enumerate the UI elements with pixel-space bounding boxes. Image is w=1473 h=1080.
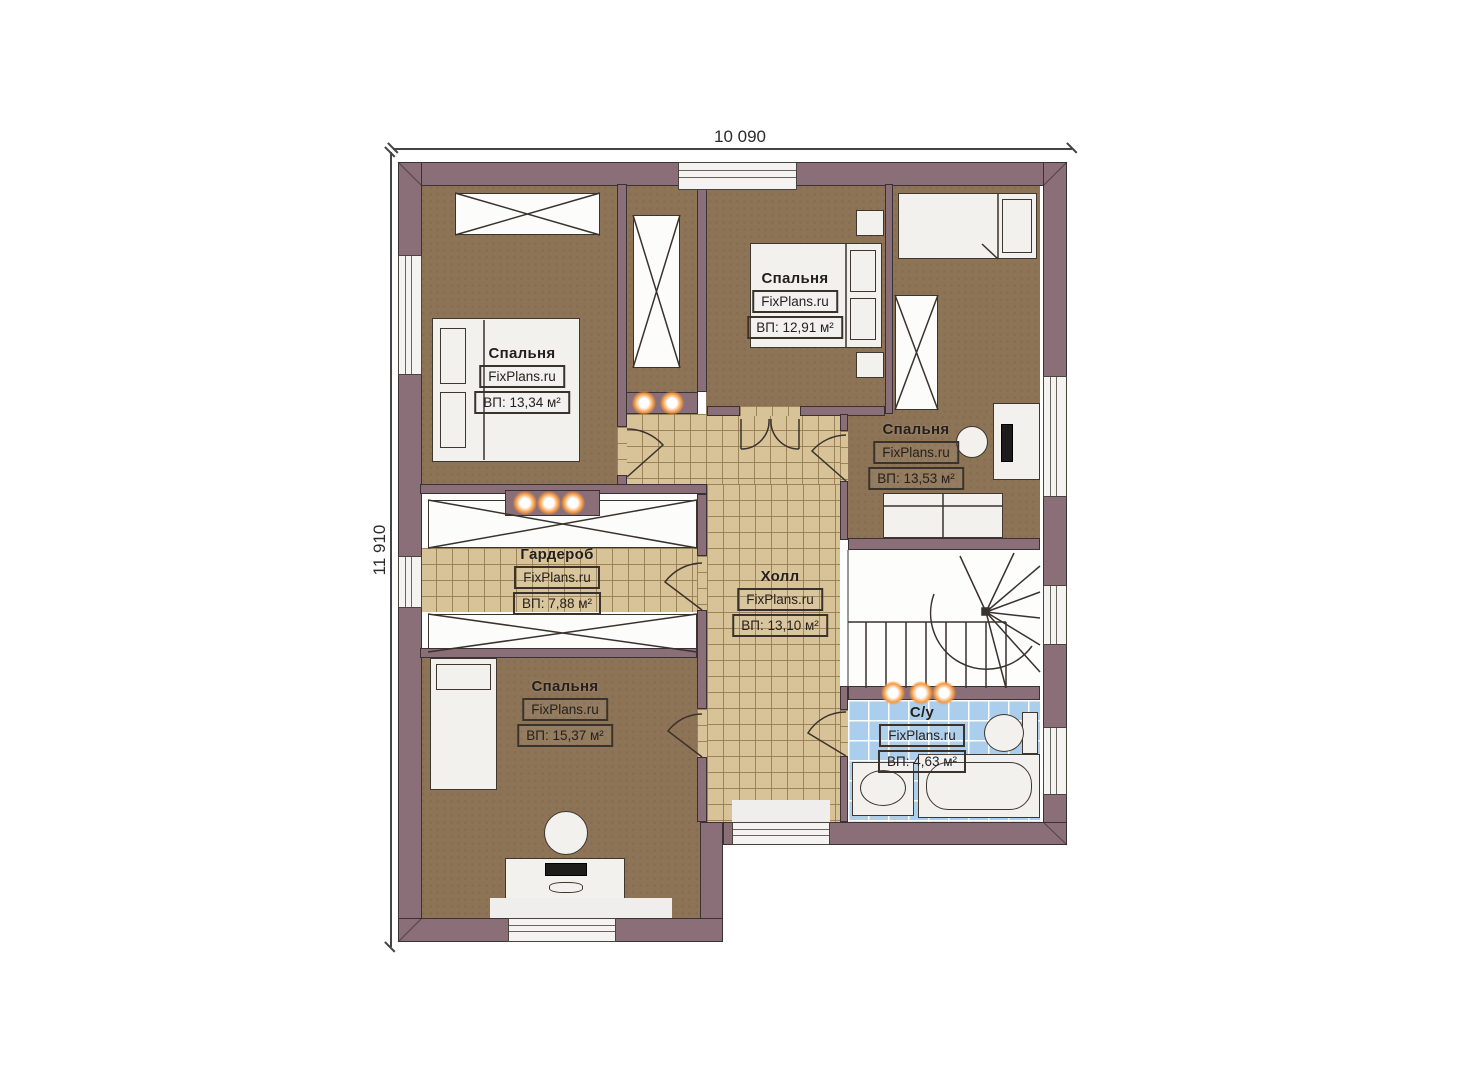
room-name: С/у — [910, 704, 934, 721]
wall-interior — [840, 756, 848, 822]
room-label-hall: Холл FixPlans.ru ВП: 13,10 м² — [732, 568, 828, 637]
room-label-bedroom-top-left: Спальня FixPlans.ru ВП: 13,34 м² — [474, 345, 570, 414]
ceiling-light — [932, 681, 956, 705]
dimension-top-label: 10 090 — [695, 127, 785, 147]
pillow — [440, 328, 466, 384]
pillow — [440, 392, 466, 448]
computer-monitor — [1001, 424, 1013, 462]
toilet-bowl — [984, 714, 1024, 752]
dimension-left-label: 11 910 — [370, 515, 390, 585]
wardrobe-unit — [428, 614, 697, 652]
sink-basin — [860, 770, 906, 806]
room-label-bedroom-bottom-left: Спальня FixPlans.ru ВП: 15,37 м² — [517, 678, 613, 747]
dimension-line-left — [390, 152, 392, 947]
ceiling-light — [561, 491, 585, 515]
door-opening — [740, 406, 800, 416]
toilet-tank — [1022, 712, 1038, 754]
wall-interior — [697, 494, 707, 556]
wall-interior — [840, 414, 848, 431]
chair — [544, 811, 588, 855]
nightstand — [856, 210, 884, 236]
window-bay — [732, 800, 830, 822]
wall-interior — [840, 686, 848, 710]
room-area: ВП: 13,53 м² — [868, 467, 964, 490]
window — [1043, 376, 1067, 497]
hall-floor-upper — [626, 414, 840, 484]
window — [398, 255, 422, 375]
hall-floor-lower — [707, 484, 840, 822]
sofa — [883, 493, 1003, 538]
watermark: FixPlans.ru — [879, 724, 965, 747]
window — [678, 162, 797, 190]
window — [398, 556, 422, 608]
room-name: Спальня — [532, 678, 599, 695]
room-name: Спальня — [489, 345, 556, 362]
room-area: ВП: 13,34 м² — [474, 391, 570, 414]
window-bay — [490, 898, 672, 918]
window — [1043, 727, 1067, 795]
window — [732, 822, 830, 845]
floor-plan: Спальня FixPlans.ru ВП: 13,34 м² Спальня… — [0, 0, 1473, 1080]
room-label-bedroom-top-right: Спальня FixPlans.ru ВП: 13,53 м² — [868, 421, 964, 490]
ceiling-light — [537, 491, 561, 515]
window — [1043, 585, 1067, 645]
wall-interior — [697, 757, 707, 822]
wall-interior — [707, 406, 740, 416]
room-area: ВП: 13,10 м² — [732, 614, 828, 637]
keyboard — [549, 882, 583, 893]
watermark: FixPlans.ru — [514, 566, 600, 589]
pillow — [850, 298, 876, 340]
staircase-area — [848, 550, 1040, 688]
room-name: Холл — [761, 568, 800, 585]
wall-interior — [848, 538, 1040, 550]
room-area: ВП: 4,63 м² — [878, 750, 966, 773]
wall-interior — [840, 481, 848, 540]
nightstand — [856, 352, 884, 378]
ceiling-light — [881, 681, 905, 705]
door-opening — [617, 427, 627, 475]
watermark: FixPlans.ru — [522, 698, 608, 721]
room-label-bathroom: С/у FixPlans.ru ВП: 4,63 м² — [878, 704, 966, 773]
wall-interior — [697, 184, 707, 392]
ceiling-light — [632, 391, 656, 415]
watermark: FixPlans.ru — [752, 290, 838, 313]
ceiling-light — [513, 491, 537, 515]
computer-monitor — [545, 863, 587, 876]
wardrobe-unit — [633, 215, 680, 368]
pillow — [436, 664, 491, 690]
pillow — [1002, 199, 1032, 253]
wall-interior — [617, 184, 627, 427]
room-area: ВП: 12,91 м² — [747, 316, 843, 339]
watermark: FixPlans.ru — [737, 588, 823, 611]
room-name: Спальня — [762, 270, 829, 287]
room-area: ВП: 7,88 м² — [513, 592, 601, 615]
room-area: ВП: 15,37 м² — [517, 724, 613, 747]
dimension-line-top — [393, 148, 1072, 150]
wall-interior — [885, 184, 893, 414]
door-opening — [697, 556, 707, 610]
pillow — [850, 250, 876, 292]
door-opening — [840, 710, 848, 756]
wall-interior — [697, 610, 707, 709]
room-label-wardrobe: Гардероб FixPlans.ru ВП: 7,88 м² — [513, 546, 601, 615]
watermark: FixPlans.ru — [873, 441, 959, 464]
door-opening — [840, 431, 848, 481]
room-name: Гардероб — [520, 546, 593, 563]
window — [508, 918, 616, 942]
wall-interior — [420, 648, 697, 658]
wardrobe-unit — [455, 193, 600, 235]
wardrobe-unit — [895, 295, 938, 410]
room-label-bedroom-top-middle: Спальня FixPlans.ru ВП: 12,91 м² — [747, 270, 843, 339]
watermark: FixPlans.ru — [479, 365, 565, 388]
room-name: Спальня — [883, 421, 950, 438]
ceiling-light — [909, 681, 933, 705]
door-opening — [697, 709, 707, 757]
ceiling-light — [660, 391, 684, 415]
